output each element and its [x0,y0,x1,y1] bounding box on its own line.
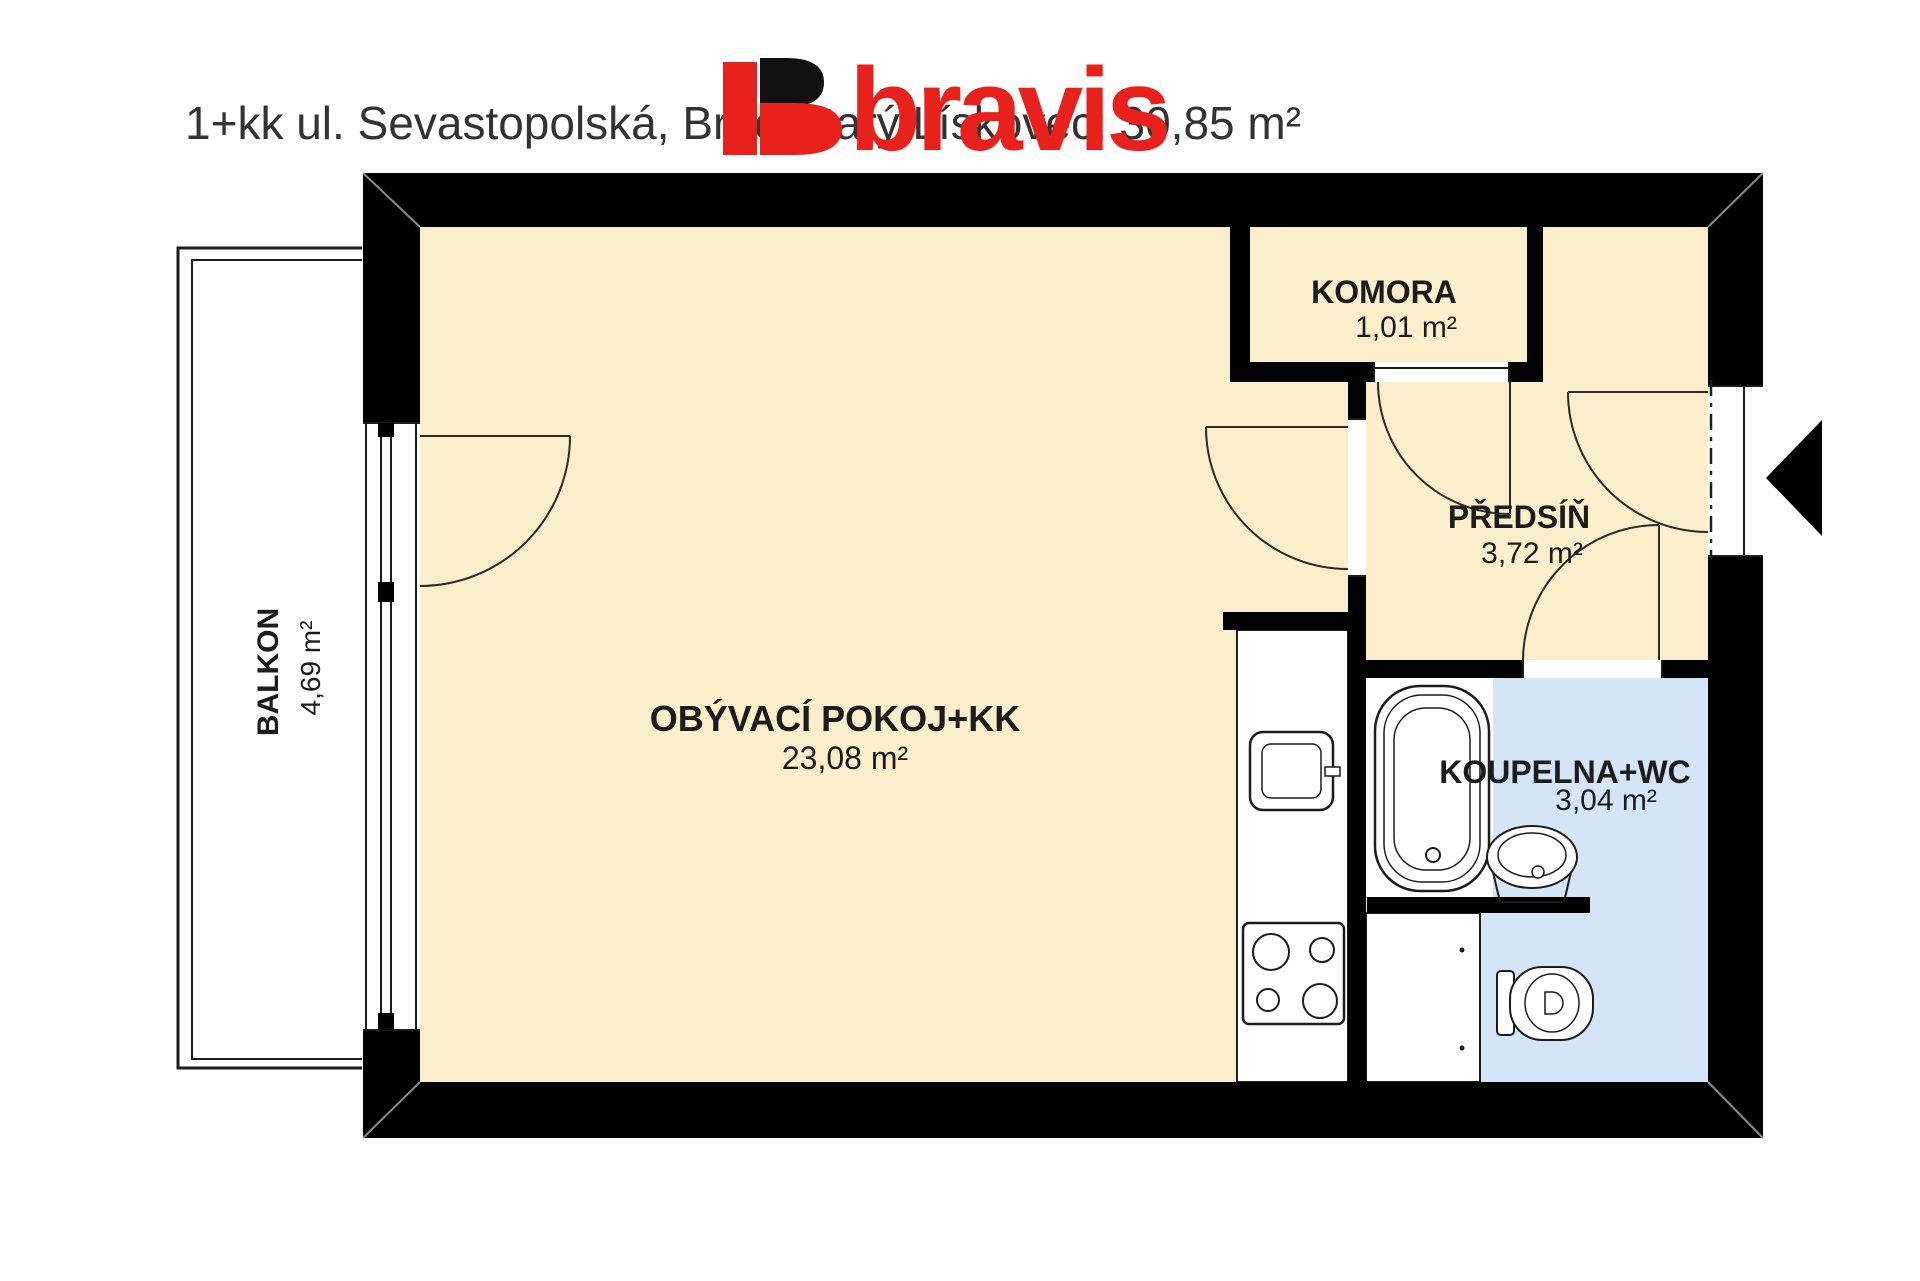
entrance-arrow-icon [1766,420,1822,536]
washer-dot [1460,948,1465,953]
door-opening-living [1348,418,1366,577]
burner [1253,934,1289,970]
wall-top [363,173,1763,227]
toilet [1497,967,1593,1040]
wall-bath-mid-stub [1367,897,1590,913]
washer-area [1366,913,1480,1082]
room-area-balkon: 4,69 m² [295,621,326,716]
wall-right-lower [1708,557,1763,1084]
wall-komora-bottom-b [1510,362,1543,382]
burner [1310,938,1334,962]
wall-bath-top-b [1663,660,1708,678]
wall-bath-top-a [1366,660,1522,678]
wall-left-upper [363,227,420,423]
wall-komora-bottom-a [1230,362,1373,382]
floor-plan: OBÝVACÍ POKOJ+KK 23,08 m² KOMORA 1,01 m²… [0,0,1920,1281]
room-label-komora: KOMORA [1311,274,1457,310]
room-living-fill [420,227,1348,1082]
faucet-icon [1325,767,1340,776]
wall-living-predsin-lower [1348,577,1366,1082]
wall-bottom [363,1082,1763,1138]
room-area-komora: 1,01 m² [1355,311,1457,344]
wall-living-predsin-stub [1348,382,1366,418]
stove [1243,923,1344,1024]
balcony-window [363,423,420,1030]
room-area-predsin: 3,72 m² [1481,537,1583,570]
window-stub-bottom [378,1013,394,1030]
door-opening-entrance [1708,380,1763,560]
room-label-balkon: BALKON [252,608,285,736]
door-opening-bathroom [1522,660,1663,678]
burner [1257,989,1279,1011]
room-label-predsin: PŘEDSÍŇ [1448,499,1590,535]
washer-dot [1460,1046,1465,1051]
burner [1303,984,1337,1018]
wall-right-upper [1708,227,1763,385]
window-stub-top [378,423,394,437]
kitchen-sink [1250,732,1340,810]
wall-left-lower [363,1030,420,1084]
room-label-living: OBÝVACÍ POKOJ+KK [650,698,1020,739]
wall-komora-right [1527,227,1543,382]
wall-kitchen-stub [1223,612,1348,630]
room-area-koupelna: 3,04 m² [1555,784,1657,817]
room-area-living: 23,08 m² [782,740,909,776]
window-stub-mid [378,582,394,602]
door-opening-komora [1373,362,1510,382]
wall-komora-left [1230,227,1250,382]
